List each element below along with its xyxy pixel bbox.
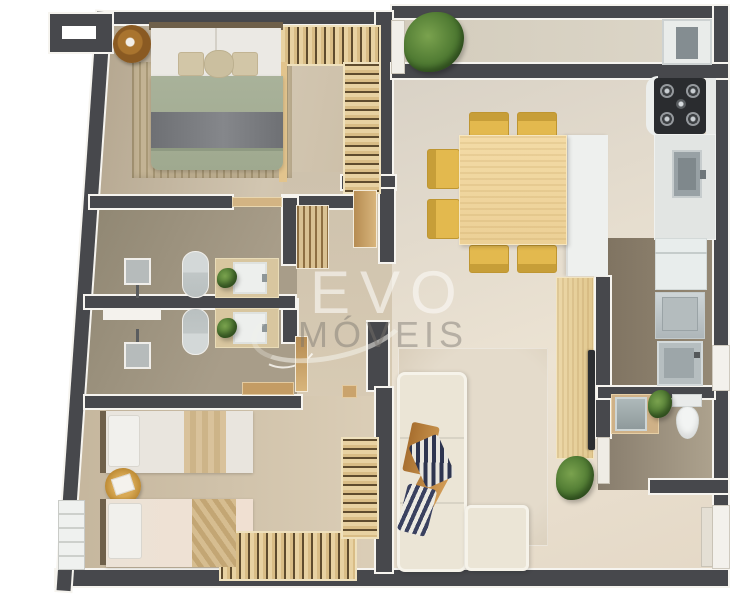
entry-door-leaf: [701, 507, 713, 567]
entry-door-opening: [712, 505, 730, 569]
fridge: [655, 238, 707, 290]
hall-open-door-upper: [353, 190, 377, 248]
burner-4: [686, 112, 700, 126]
kitchen-sink-basin: [678, 158, 696, 190]
dining-table: [459, 135, 567, 245]
bed2b-pillow: [108, 503, 142, 559]
bed2a-headboard: [100, 411, 106, 473]
dining-chair-left-1: [427, 149, 460, 189]
tv: [588, 350, 595, 450]
dining-chair-left-2: [427, 199, 460, 239]
bedroom2-closet-bottom: [219, 531, 357, 581]
small-bath-door-leaf: [597, 437, 610, 484]
bedroom1-closet-top: [277, 25, 381, 66]
dining-chair-bottom-2: [517, 245, 557, 273]
laundry-window: [712, 345, 730, 391]
balcony-side-door-leaf: [391, 20, 405, 74]
washing-machine-lid: [662, 297, 698, 331]
bed2b-blanket: [192, 499, 236, 567]
bed2a-blanket: [184, 411, 226, 473]
wall-hall-right-lower: [368, 322, 388, 390]
bedroom2-door-sill: [342, 385, 357, 398]
laundry-faucet: [694, 352, 700, 358]
shower-stem-b: [136, 329, 139, 342]
bed1-blanket-gray: [151, 112, 283, 148]
kitchen-faucet: [700, 170, 706, 179]
toilet-b: [182, 308, 209, 355]
kitchen-island: [566, 135, 608, 276]
bedroom2-closet-right: [341, 437, 379, 539]
bathroom-bench: [242, 382, 294, 395]
dining-chair-bottom-1: [469, 245, 509, 273]
shower-head-b: [124, 342, 151, 369]
wall-service-left: [596, 277, 610, 437]
bed2b-headboard: [100, 499, 106, 565]
bedroom1-closet-right: [343, 62, 381, 194]
fridge-door-split: [655, 252, 707, 254]
wall-hall-right-upper: [380, 189, 394, 262]
faucet-a: [262, 274, 267, 282]
wall-bathroom-bottom: [85, 396, 301, 408]
stove-side-strip: [706, 78, 716, 134]
faucet-b: [262, 324, 267, 332]
bedroom1-door-sill: [232, 197, 282, 207]
bedroom2-dresser: [58, 500, 85, 570]
wall-bathroom-right-upper: [283, 198, 297, 264]
burner-2: [686, 84, 700, 98]
top-left-notch-opening: [62, 26, 96, 39]
floor-plan: EVO MÓVEIS: [0, 0, 733, 600]
toilet-a: [182, 251, 209, 298]
bed1-pillow-center: [204, 50, 234, 78]
basket-decor: [113, 25, 151, 63]
bed1-pillow-left: [178, 52, 204, 76]
bed1-duvet-fold: [151, 148, 283, 151]
bathroom-wall-shelf: [103, 308, 161, 320]
bathroom-b-door-leaf: [295, 336, 308, 392]
laundry-tub-basin: [664, 348, 694, 378]
shower-head-a: [124, 258, 151, 285]
balcony-appliance-screen: [676, 27, 698, 59]
burner-3: [660, 112, 674, 126]
bed2a-pillow: [108, 415, 140, 467]
louver-door: [296, 205, 329, 269]
sofa-chaise: [465, 505, 529, 571]
wall-bedroom1-bottom-left: [90, 196, 232, 208]
burner-center: [676, 99, 686, 109]
small-bath-sink: [615, 397, 647, 431]
shower-stem-a: [136, 285, 139, 298]
wall-small-bath-bottom: [650, 480, 728, 493]
wall-right: [714, 6, 728, 586]
wall-bottom: [56, 570, 728, 586]
bed1-pillow-right: [232, 52, 258, 76]
burner-1: [660, 84, 674, 98]
